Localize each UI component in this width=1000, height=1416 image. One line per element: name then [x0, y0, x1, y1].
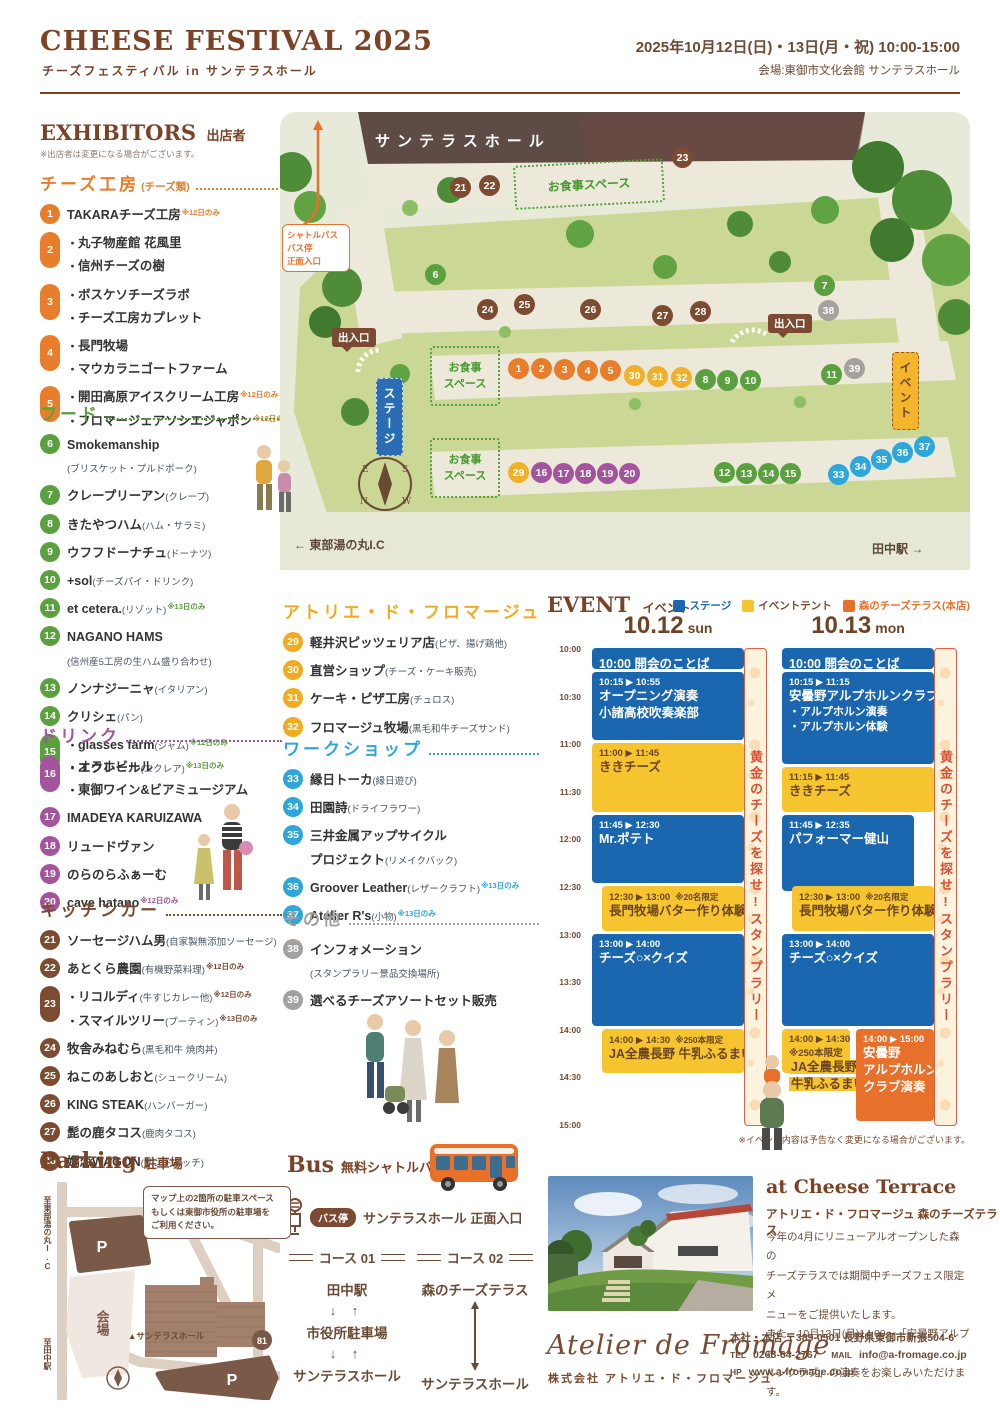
exhibitor-number: 34: [283, 797, 303, 817]
exhibitor-item: 34田園詩(ドライフラワー): [283, 796, 539, 819]
exhibitor-text: あとくら農園(有機野菜料理)※12日のみ: [67, 957, 244, 980]
exhibitor-line: ノンナジーニャ(イタリアン): [67, 677, 208, 700]
schedule-event: 13:00 ▶ 14:00チーズ○×クイズ: [592, 934, 744, 1026]
exhibitor-number: 17: [40, 807, 60, 827]
exhibitor-number: 24: [40, 1038, 60, 1058]
meal-space-label: お食事 スペース: [430, 438, 500, 498]
venue-map: E S N W サンテラスホール シャトルバスバス停正面入口 出入口 出入口 ス…: [280, 112, 970, 570]
day-header-sun: 10.12sun: [592, 612, 744, 640]
exhibitor-line: (信州産5工房の生ハム盛り合わせ): [67, 649, 212, 672]
exhibitor-text: インフォメーション(スタンプラリー景品交換場所): [310, 938, 440, 984]
section-title: ワークショップ: [283, 735, 423, 760]
day-restriction-note: ※13日のみ: [481, 881, 519, 890]
exhibitor-line: ソーセージハム男(自家製無添加ソーセージ): [67, 929, 277, 952]
company-address-block: 本社・本店 〒389-0501 長野県東御市新張504-6 TEL 0268-6…: [730, 1330, 970, 1380]
section-heading: ドリンク: [40, 722, 282, 747]
people-illustration: [190, 800, 260, 910]
exhibitor-text: ・長門牧場・マウカラニゴートファーム: [67, 334, 228, 380]
schedule-event: 11:15 ▶ 11:45ききチーズ: [782, 767, 934, 812]
event-title-line: JA全農長野 牛乳ふるまい: [609, 1046, 737, 1063]
section-title: キッチンカー: [40, 896, 160, 921]
day-restriction-note: ※12日のみ: [240, 390, 278, 399]
time-axis-label: 10:30: [545, 692, 581, 702]
svg-text:P: P: [97, 1239, 108, 1256]
day-restriction-note: ※13日のみ: [219, 1014, 257, 1023]
exhibitor-line: Groover Leather(レザークラフト)※13日のみ: [310, 876, 519, 899]
exhibitor-number: 38: [283, 939, 303, 959]
map-booth-marker: 26: [580, 299, 601, 320]
exhibitor-text: et cetera.(リゾット)※13日のみ: [67, 597, 205, 620]
tel-number: 0268-64-2767: [753, 1349, 818, 1361]
dotted-leader: [166, 914, 282, 916]
section-heading: フード: [40, 400, 282, 425]
event-title-line: 安曇野アルプホルンクラブ: [789, 688, 927, 705]
exhibitor-item: 10+sol(チーズパイ・ドリンク): [40, 569, 282, 592]
time-axis-label: 11:30: [545, 787, 581, 797]
dotted-leader: [196, 188, 282, 190]
legend-item: イベントテント: [742, 598, 832, 613]
event-time: 11:45 ▶ 12:30: [599, 820, 737, 831]
map-booth-marker: 7: [814, 275, 835, 296]
map-booth-marker: 19: [597, 463, 618, 484]
map-booth-marker: 30: [624, 365, 645, 386]
map-booth-marker: 8: [695, 369, 716, 390]
parking-heading: Parking駐車場: [40, 1148, 183, 1174]
exhibitor-text: きたやつハム(ハム・サラミ): [67, 513, 205, 536]
event-legend: ステージイベントテント森のチーズテラス(本店): [673, 598, 970, 613]
map-booth-marker: 22: [479, 175, 500, 196]
event-tent-tag: イベント: [892, 352, 919, 430]
exhibitor-text: ・リコルディ(牛すじカレー他)※12日のみ・スマイルツリー(プーティン)※13日…: [67, 985, 258, 1031]
exhibitor-item: 2・丸子物産館 花風里・信州チーズの樹: [40, 231, 282, 277]
legend-swatch: [742, 600, 754, 612]
exhibitor-text: KING STEAK(ハンバーガー): [67, 1093, 207, 1116]
map-booth-marker: 12: [714, 462, 735, 483]
time-axis-label: 15:00: [545, 1120, 581, 1130]
exhibitor-text: ノンナジーニャ(イタリアン): [67, 677, 208, 700]
map-booth-marker: 31: [647, 366, 668, 387]
busstop-text: サンテラスホール 正面入口: [363, 1208, 522, 1227]
terrace-body-line: 今年の4月にリニューアルオープンした森の: [766, 1228, 970, 1267]
to-station-label: 至田中駅: [42, 1338, 53, 1370]
map-booth-marker: 14: [758, 463, 779, 484]
hp-url[interactable]: www.a-fromage.co.jp: [749, 1366, 854, 1378]
schedule-event: 12:30 ▶ 13:00※20名限定長門牧場バター作り体験: [792, 886, 934, 931]
bus-course-label: コース 01: [287, 1248, 407, 1267]
time-axis-label: 14:30: [545, 1072, 581, 1082]
time-axis-label: 12:00: [545, 834, 581, 844]
exhibitor-item: 38インフォメーション(スタンプラリー景品交換場所): [283, 938, 539, 984]
map-booth-marker: 18: [575, 463, 596, 484]
schedule-column-sun: 10:00 開会のことば10:15 ▶ 10:55オープニング演奏小諸高校吹奏楽…: [592, 648, 744, 1124]
map-booth-marker: 1: [508, 358, 529, 379]
event-time: 13:00 ▶ 14:00: [789, 939, 927, 950]
section-heading: その他: [283, 905, 539, 930]
map-booth-marker: 17: [553, 463, 574, 484]
event-time: 12:30 ▶ 13:00※20名限定: [799, 891, 927, 903]
exhibitor-text: クレープリーアン(クレープ): [67, 484, 209, 507]
exhibitor-text: ・ボスケソチーズラボ・チーズ工房カプレット: [67, 283, 202, 329]
map-booth-marker: 36: [892, 442, 913, 463]
map-booth-marker: 29: [508, 462, 529, 483]
exhibitor-text: ケーキ・ピザ工房(チュロス): [310, 687, 454, 710]
section-title: その他: [283, 905, 343, 930]
map-booth-marker: 15: [780, 463, 801, 484]
section-heading: ワークショップ: [283, 735, 539, 760]
schedule-event: 10:15 ▶ 11:15安曇野アルプホルンクラブ・アルプホルン演奏・アルプホル…: [782, 672, 934, 764]
updown-arrows-icon: ↓ ↑: [287, 1346, 407, 1361]
event-time: 11:00 ▶ 11:45: [599, 748, 737, 759]
schedule-event: 11:00 ▶ 11:45ききチーズ: [592, 743, 744, 811]
dotted-leader: [106, 418, 282, 420]
terrace-body-line: チーズテラスでは期間中チーズフェス限定メ: [766, 1267, 970, 1306]
svg-text:N: N: [360, 497, 368, 507]
meal-space-label: お食事 スペース: [430, 346, 500, 406]
exhibitor-text: ウフフドーナチュ(ドーナツ): [67, 541, 211, 564]
terrace-title: at Cheese Terrace: [766, 1176, 956, 1198]
exhibitors-note: ※出店者は変更になる場合がございます。: [40, 148, 280, 160]
page-title: CHEESE FESTIVAL 2025: [40, 26, 433, 57]
svg-text:P: P: [227, 1372, 238, 1389]
event-time: 11:15 ▶ 11:45: [789, 772, 927, 783]
exhibitor-item: 12NAGANO HAMS(信州産5工房の生ハム盛り合わせ): [40, 625, 282, 671]
map-booth-marker: 5: [600, 360, 621, 381]
exhibitor-line: Smokemanship: [67, 433, 197, 456]
exhibitor-number: 18: [40, 836, 60, 856]
ic-direction-label: ← 東部湯の丸I.C: [294, 536, 385, 553]
terrace-photo: [548, 1176, 753, 1311]
legend-swatch: [843, 600, 855, 612]
schedule-event: 14:00 ▶ 14:30※250本限定JA全農長野 牛乳ふるまい: [602, 1029, 744, 1074]
exhibitor-line: 直営ショップ(チーズ・ケーキ販売): [310, 659, 476, 682]
bus-course-1: コース 01田中駅↓ ↑市役所駐車場↓ ↑サンテラスホール: [287, 1248, 407, 1385]
event-inline-title: 10:00 開会のことば: [789, 653, 927, 669]
people-illustration: [742, 1052, 802, 1152]
section-heading: アトリエ・ド・フロマージュ: [283, 598, 539, 623]
shuttle-bus-stop-label: シャトルバスバス停正面入口: [282, 224, 350, 272]
exhibitor-number: 25: [40, 1066, 60, 1086]
exhibitor-line: ・マウカラニゴートファーム: [67, 357, 228, 380]
shuttle-label-line: シャトルバス: [287, 229, 345, 242]
exhibitor-number: 1: [40, 204, 60, 224]
tel-label: TEL: [730, 1350, 746, 1360]
exhibitor-line: プロジェクト(リメイクバック): [310, 848, 457, 871]
event-title-line: アルプホルン: [863, 1062, 927, 1079]
exhibitor-line: インフォメーション: [310, 938, 440, 961]
map-booth-marker: 2: [531, 358, 552, 379]
map-booth-marker: 9: [717, 370, 738, 391]
exhibitors-heading: EXHIBITORS 出店者 ※出店者は変更になる場合がございます。: [40, 120, 280, 160]
legend-swatch: [673, 600, 685, 612]
section-title: チーズ工房: [40, 170, 139, 195]
exhibitor-number: 22: [40, 958, 60, 978]
event-limit: ※20名限定: [675, 892, 718, 902]
exhibitor-text: ねこのあしおと(シュークリーム): [67, 1065, 227, 1088]
exhibitor-text: 縁日トーカ(縁日遊び): [310, 768, 417, 791]
exhibitor-line: (ブリスケット・プルドポーク): [67, 456, 197, 479]
dotted-leader: [429, 753, 539, 755]
exhibitor-item: 23・リコルディ(牛すじカレー他)※12日のみ・スマイルツリー(プーティン)※1…: [40, 985, 282, 1031]
exhibitor-item: 11et cetera.(リゾット)※13日のみ: [40, 597, 282, 620]
section-heading: チーズ工房(チーズ類): [40, 170, 282, 195]
bus-course-label: コース 02: [415, 1248, 535, 1267]
bus-stop-name: 市役所駐車場: [287, 1322, 407, 1342]
busstop-row: バス停 サンテラスホール 正面入口: [287, 1198, 522, 1236]
exhibitor-line: ケーキ・ピザ工房(チュロス): [310, 687, 454, 710]
exhibitor-line: あとくら農園(有機野菜料理)※12日のみ: [67, 957, 244, 980]
event-time: 13:00 ▶ 14:00: [599, 939, 737, 950]
exhibitor-number: 6: [40, 434, 60, 454]
bus-icon: [428, 1140, 520, 1192]
exhibitor-line: ねこのあしおと(シュークリーム): [67, 1065, 227, 1088]
exhibitor-text: ソーセージハム男(自家製無添加ソーセージ): [67, 929, 277, 952]
day-restriction-note: ※12日のみ: [182, 208, 220, 217]
exhibitor-number: 36: [283, 877, 303, 897]
exhibitor-line: ・オラホビール: [67, 755, 248, 778]
event-title-line: 長門牧場バター作り体験: [609, 903, 737, 920]
exhibitor-number: 29: [283, 632, 303, 652]
exhibitor-line: (スタンプラリー景品交換場所): [310, 961, 440, 984]
exhibitor-line: ・ボスケソチーズラボ: [67, 283, 202, 306]
event-title-line: クラブ演奏: [863, 1079, 927, 1096]
parking-hall-label: ▲サンテラスホール: [128, 1330, 204, 1342]
exhibitor-text: Groover Leather(レザークラフト)※13日のみ: [310, 876, 519, 899]
bus-stop-name: サンテラスホール: [287, 1365, 407, 1385]
company-address: 本社・本店 〒389-0501 長野県東御市新張504-6: [730, 1330, 970, 1347]
map-booth-marker: 21: [450, 177, 471, 198]
exhibitors-title: EXHIBITORS: [40, 120, 196, 145]
svg-text:S: S: [402, 465, 408, 475]
schedule-event: 11:45 ▶ 12:35パフォーマー健山: [782, 815, 914, 891]
exhibitor-line: ・信州チーズの樹: [67, 254, 181, 277]
exhibitor-item: 9ウフフドーナチュ(ドーナツ): [40, 541, 282, 564]
exhibitor-number: 11: [40, 598, 60, 618]
legend-label: ステージ: [689, 598, 731, 613]
schedule-event: 11:45 ▶ 12:30Mr.ポテト: [592, 815, 744, 883]
event-title-line: パフォーマー健山: [789, 831, 907, 848]
parking-note-line: マップ上の2箇所の駐車スペース: [151, 1192, 283, 1206]
exhibitor-line: ・チーズ工房カプレット: [67, 306, 202, 329]
page-subtitle: チーズフェスティバル in サンテラスホール: [42, 62, 318, 79]
people-illustration: [242, 440, 302, 524]
busstop-badge: バス停: [310, 1208, 356, 1227]
map-booth-marker: 24: [477, 299, 498, 320]
exhibitor-number: 26: [40, 1094, 60, 1114]
dotted-leader: [349, 923, 539, 925]
exhibitor-number: 30: [283, 660, 303, 680]
exhibitor-text: ・オラホビール・東御ワイン&ビアミュージアム: [67, 755, 248, 801]
exhibitor-item: 25ねこのあしおと(シュークリーム): [40, 1065, 282, 1088]
bus-stop-name: 森のチーズテラス: [415, 1279, 535, 1299]
day-header-mon: 10.13mon: [782, 612, 934, 640]
exhibitor-item: 21ソーセージハム男(自家製無添加ソーセージ): [40, 929, 282, 952]
terrace-body-line: ニューをご提供いたします。: [766, 1306, 970, 1325]
exhibitor-line: ・リコルディ(牛すじカレー他)※12日のみ: [67, 985, 258, 1008]
day-restriction-note: ※12日のみ: [206, 962, 244, 971]
exhibitor-line: ・東御ワイン&ビアミュージアム: [67, 778, 248, 801]
schedule-event: 10:00 開会のことば: [592, 648, 744, 669]
exhibitor-line: リュードヴァン: [67, 835, 155, 858]
section-other: その他38インフォメーション(スタンプラリー景品交換場所)39選べるチーズアソー…: [283, 905, 539, 1018]
map-booth-marker: 38: [818, 300, 839, 321]
exhibitor-number: 4: [40, 335, 60, 371]
event-title-line: 安曇野: [863, 1045, 927, 1062]
header-divider: [40, 92, 960, 94]
svg-text:W: W: [402, 497, 412, 507]
exhibitor-number: 10: [40, 570, 60, 590]
exhibitor-line: のらのらふぁーむ: [67, 863, 167, 886]
exhibitor-text: NAGANO HAMS(信州産5工房の生ハム盛り合わせ): [67, 625, 212, 671]
schedule-event: 12:30 ▶ 13:00※20名限定長門牧場バター作り体験: [602, 886, 744, 931]
exhibitor-text: TAKARAチーズ工房※12日のみ: [67, 203, 220, 226]
section-atelier: アトリエ・ド・フロマージュ29軽井沢ピッツェリア店(ピザ、揚げ鶏他)30直営ショ…: [283, 598, 539, 744]
exhibitor-item: 13ノンナジーニャ(イタリアン): [40, 677, 282, 700]
time-axis-label: 13:30: [545, 977, 581, 987]
event-title-line: チーズ○×クイズ: [599, 950, 737, 967]
exhibitor-line: きたやつハム(ハム・サラミ): [67, 513, 205, 536]
exhibitor-line: NAGANO HAMS: [67, 625, 212, 648]
people-illustration: [355, 1008, 465, 1133]
exhibitor-text: Smokemanship(ブリスケット・プルドポーク): [67, 433, 197, 479]
hall-label: サンテラスホール: [375, 130, 551, 151]
exhibitor-line: KING STEAK(ハンバーガー): [67, 1093, 207, 1116]
event-title-line: ・アルプホルン演奏: [789, 705, 927, 720]
map-booth-marker: 11: [821, 364, 842, 385]
exhibitor-item: 27髭の鹿タコス(鹿肉タコス): [40, 1121, 282, 1144]
section-title: アトリエ・ド・フロマージュ: [283, 598, 541, 623]
exhibitor-text: 髭の鹿タコス(鹿肉タコス): [67, 1121, 196, 1144]
shuttle-label-line: バス停: [287, 242, 345, 255]
exhibitor-number: 7: [40, 485, 60, 505]
legend-label: 森のチーズテラス(本店): [859, 598, 970, 613]
section-cheese-kobo: チーズ工房(チーズ類)1TAKARAチーズ工房※12日のみ2・丸子物産館 花風里…: [40, 170, 282, 437]
exhibitor-item: 35三井金属アップサイクルプロジェクト(リメイクバック): [283, 824, 539, 870]
exhibitor-text: IMADEYA KARUIZAWA: [67, 806, 202, 829]
schedule-column-mon: 10:00 開会のことば10:15 ▶ 11:15安曇野アルプホルンクラブ・アル…: [782, 648, 934, 1124]
map-booth-marker: 37: [914, 436, 935, 457]
event-title-line: オープニング演奏: [599, 688, 737, 705]
exhibitor-line: 軽井沢ピッツェリア店(ピザ、揚げ鶏他): [310, 631, 507, 654]
gate-tag: 出入口: [332, 328, 376, 347]
event-title-line: Mr.ポテト: [599, 831, 737, 848]
exhibitor-number: 32: [283, 717, 303, 737]
schedule-event: 10:15 ▶ 10:55オープニング演奏小諸高校吹奏楽部: [592, 672, 744, 740]
event-title-line: チーズ○×クイズ: [789, 950, 927, 967]
exhibitor-number: 13: [40, 678, 60, 698]
updown-arrows-icon: ↓ ↑: [287, 1303, 407, 1318]
long-arrow-icon: [415, 1299, 535, 1373]
shuttle-label-line: 正面入口: [287, 255, 345, 268]
mail-address[interactable]: info@a-fromage.co.jp: [859, 1349, 967, 1361]
exhibitor-item: 1TAKARAチーズ工房※12日のみ: [40, 203, 282, 226]
exhibitor-item: 36Groover Leather(レザークラフト)※13日のみ: [283, 876, 539, 899]
event-time: 10:15 ▶ 10:55: [599, 677, 737, 688]
exhibitor-item: 29軽井沢ピッツェリア店(ピザ、揚げ鶏他): [283, 631, 539, 654]
exhibitor-text: 田園詩(ドライフラワー): [310, 796, 420, 819]
meal-space-label: お食事スペース: [513, 158, 665, 210]
day-restriction-note: ※13日のみ: [167, 602, 205, 611]
event-date: 2025年10月12日(日)・13日(月・祝) 10:00-15:00: [636, 36, 960, 57]
exhibitor-number: 31: [283, 688, 303, 708]
legend-label: イベントテント: [758, 598, 832, 613]
svg-text:会場: 会場: [95, 1309, 110, 1337]
schedule-event: 10:00 開会のことば: [782, 648, 934, 669]
exhibitor-text: +sol(チーズパイ・ドリンク): [67, 569, 193, 592]
exhibitor-line: TAKARAチーズ工房※12日のみ: [67, 203, 220, 226]
exhibitor-line: 三井金属アップサイクル: [310, 824, 457, 847]
exhibitor-line: ・スマイルツリー(プーティン)※13日のみ: [67, 1009, 258, 1032]
exhibitor-line: ・長門牧場: [67, 334, 228, 357]
exhibitor-text: 軽井沢ピッツェリア店(ピザ、揚げ鶏他): [310, 631, 507, 654]
exhibitor-text: のらのらふぁーむ: [67, 863, 167, 886]
event-time: 10:15 ▶ 11:15: [789, 677, 927, 688]
hp-label: HP: [730, 1367, 742, 1377]
exhibitor-number: 39: [283, 990, 303, 1010]
section-kitchen-car: キッチンカー21ソーセージハム男(自家製無添加ソーセージ)22あとくら農園(有機…: [40, 896, 282, 1178]
time-axis-label: 14:00: [545, 1025, 581, 1035]
event-title-line: ききチーズ: [789, 783, 927, 800]
exhibitor-number: 27: [40, 1122, 60, 1142]
time-axis-label: 10:00: [545, 644, 581, 654]
event-time: 14:00 ▶ 14:30※250本限定: [609, 1034, 737, 1046]
event-title-line: ・アルプホルン体験: [789, 720, 927, 735]
time-axis-label: 12:30: [545, 882, 581, 892]
station-direction-label: 田中駅 →: [872, 540, 923, 557]
exhibitor-number: 23: [40, 986, 60, 1022]
map-booth-marker: 35: [871, 449, 892, 470]
bus-stop-name: 田中駅: [287, 1279, 407, 1299]
exhibitor-item: 16・オラホビール・東御ワイン&ビアミュージアム: [40, 755, 282, 801]
map-booth-marker: 13: [736, 463, 757, 484]
parking-note: マップ上の2箇所の駐車スペースもしくは東御市役所の駐車場をご利用ください。: [143, 1186, 291, 1239]
schedule-event: 14:00 ▶ 15:00安曇野アルプホルンクラブ演奏: [856, 1029, 934, 1121]
exhibitor-number: 16: [40, 756, 60, 792]
map-booth-marker: 27: [652, 305, 673, 326]
map-booth-marker: 10: [740, 370, 761, 391]
exhibitor-line: 縁日トーカ(縁日遊び): [310, 768, 417, 791]
exhibitor-text: 牧舎みねむら(黒毛和牛 焼肉丼): [67, 1037, 217, 1060]
event-title-line: ききチーズ: [599, 759, 737, 776]
event-limit: ※250本限定: [675, 1035, 723, 1045]
exhibitor-item: 26KING STEAK(ハンバーガー): [40, 1093, 282, 1116]
exhibitor-number: 12: [40, 626, 60, 646]
exhibitor-number: 33: [283, 769, 303, 789]
event-venue: 会場:東御市文化会館 サンテラスホール: [758, 62, 960, 78]
exhibitors-title-jp: 出店者: [207, 128, 246, 143]
map-booth-marker: 4: [577, 360, 598, 381]
exhibitor-line: +sol(チーズパイ・ドリンク): [67, 569, 193, 592]
exhibitor-item: 4・長門牧場・マウカラニゴートファーム: [40, 334, 282, 380]
map-booth-marker: 34: [850, 456, 871, 477]
section-title-note: (チーズ類): [141, 179, 189, 194]
map-booth-marker: 33: [828, 464, 849, 485]
section-workshop: ワークショップ33縁日トーカ(縁日遊び)34田園詩(ドライフラワー)35三井金属…: [283, 735, 539, 932]
exhibitor-line: 田園詩(ドライフラワー): [310, 796, 420, 819]
exhibitor-line: IMADEYA KARUIZAWA: [67, 806, 202, 829]
svg-text:81: 81: [257, 1336, 267, 1346]
map-booth-marker: 3: [554, 359, 575, 380]
bus-course-2: コース 02森のチーズテラスサンテラスホール: [415, 1248, 535, 1393]
exhibitor-line: 牧舎みねむら(黒毛和牛 焼肉丼): [67, 1037, 217, 1060]
exhibitor-item: 31ケーキ・ピザ工房(チュロス): [283, 687, 539, 710]
event-time: 12:30 ▶ 13:00※20名限定: [609, 891, 737, 903]
event-limit: ※20名限定: [865, 892, 908, 902]
map-booth-marker: 16: [531, 462, 552, 483]
time-axis-label: 11:00: [545, 739, 581, 749]
map-booth-marker: 39: [844, 358, 865, 379]
map-booth-marker: 25: [514, 294, 535, 315]
time-axis-label: 13:00: [545, 930, 581, 940]
